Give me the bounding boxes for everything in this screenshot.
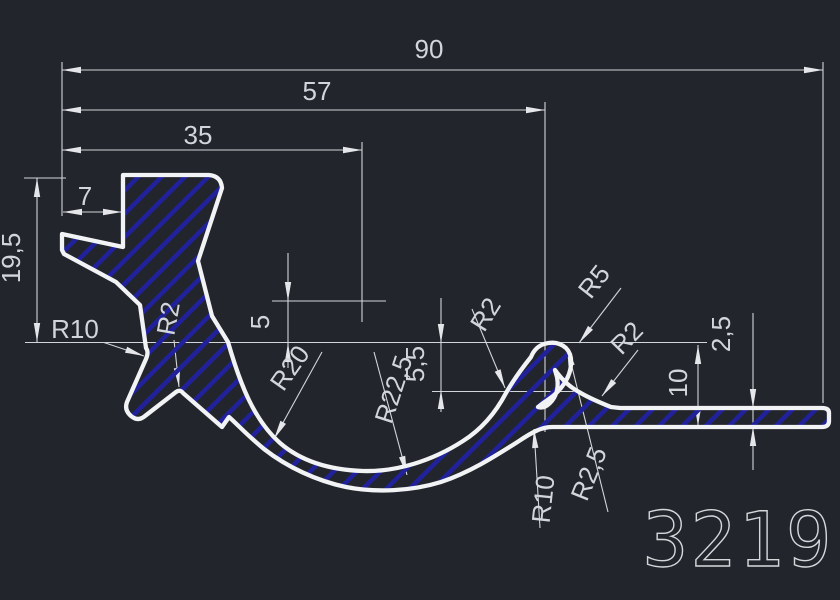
radius-r20-label: R20 <box>264 340 316 396</box>
radius-r5-label: R5 <box>572 259 616 304</box>
arrowhead <box>526 107 545 113</box>
arrowhead <box>343 147 362 153</box>
dimension-labels: 90 57 35 7 19,5 R10 R2 5 R20 R22,5 5,5 R… <box>0 34 834 584</box>
arrowhead <box>103 209 122 215</box>
arrowhead <box>34 178 40 197</box>
radius-r10-bottom-label: R10 <box>526 474 561 525</box>
arrowhead <box>579 326 593 343</box>
arrowhead <box>285 282 291 301</box>
radius-r2-neck-label: R2 <box>150 299 185 337</box>
radius-r10-left-label: R10 <box>51 314 99 344</box>
radius-r2-5-label: R2,5 <box>564 443 612 505</box>
arrowhead <box>695 345 701 364</box>
arrowhead <box>438 324 444 343</box>
dim-57-label: 57 <box>303 76 332 106</box>
dim-2-5-label: 2,5 <box>706 316 736 352</box>
arrowhead <box>750 427 756 446</box>
dim-5-label: 5 <box>245 315 275 329</box>
arrowhead <box>495 369 505 388</box>
dim-10-label: 10 <box>663 369 693 398</box>
arrowhead <box>804 67 823 73</box>
arrowhead <box>62 107 81 113</box>
arrowhead <box>125 347 144 356</box>
radius-r2-hook-label: R2 <box>604 315 649 360</box>
dim-7-label: 7 <box>78 181 92 211</box>
dim-5-5-label: 5,5 <box>400 346 430 382</box>
dim-35-label: 35 <box>184 120 213 150</box>
arrowhead <box>62 67 81 73</box>
dim-19-5-label: 19,5 <box>0 233 26 284</box>
arrowhead <box>602 379 616 396</box>
radius-r2-mid-label: R2 <box>464 292 507 336</box>
arrowhead <box>750 389 756 408</box>
arrowhead <box>438 390 444 409</box>
cad-drawing-canvas: 90 57 35 7 19,5 R10 R2 5 R20 R22,5 5,5 R… <box>0 0 840 600</box>
dim-90-label: 90 <box>415 34 444 64</box>
arrowhead <box>34 323 40 342</box>
arrowhead <box>62 147 81 153</box>
part-number: 3219 <box>642 495 833 584</box>
